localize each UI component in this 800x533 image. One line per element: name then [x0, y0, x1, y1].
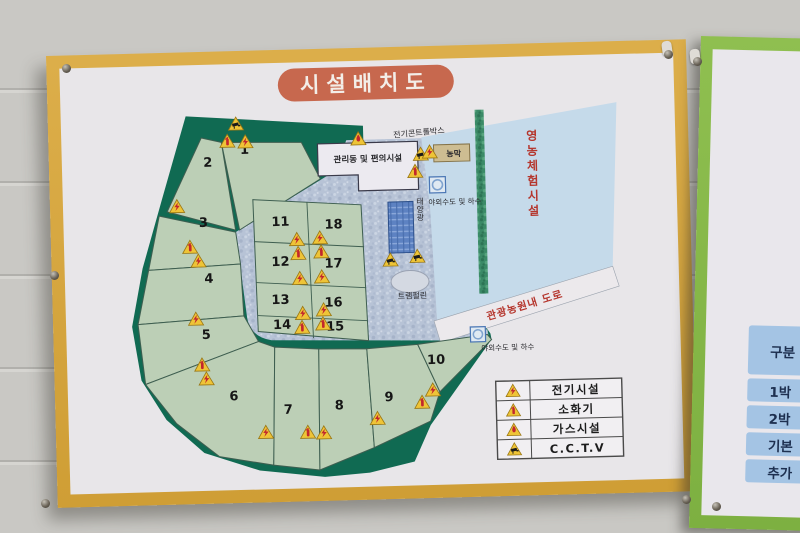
price-table-row: 구분 — [748, 325, 800, 377]
price-table: 구분1박2박기본추가 — [745, 325, 800, 489]
legend-label: 가스시설 — [553, 421, 602, 436]
legend-label: 소화기 — [558, 402, 595, 417]
plot-number: 6 — [229, 389, 238, 404]
plot-4 — [137, 264, 244, 325]
plot-number: 5 — [202, 328, 211, 343]
map-legend: 전기시설소화기가스시설C.C.T.V — [496, 378, 624, 459]
plot-number: 4 — [204, 272, 213, 287]
outdoor-water-top-icon — [429, 177, 445, 193]
outdoor-water-bottom-icon — [470, 327, 485, 342]
plot-number: 14 — [273, 318, 291, 333]
bolt — [50, 271, 59, 280]
plot-number: 3 — [199, 216, 208, 231]
plot-number: 2 — [203, 156, 212, 171]
trampoline-label: 트램펄린 — [398, 290, 428, 301]
price-table-row: 1박 — [747, 378, 800, 404]
photo-of-signboards: 시설배치도 — [0, 0, 800, 533]
outdoor-water-top-label: 야외수도 및 하수 — [428, 196, 481, 207]
price-table-row: 추가 — [745, 459, 800, 485]
side-signboard-face: 1)2)3)4) 구분1박2박기본추가 — [701, 49, 800, 518]
bolt — [41, 499, 50, 508]
plot-number: 11 — [271, 215, 289, 230]
bolt — [693, 57, 702, 66]
bolt — [682, 495, 691, 504]
price-table-row: 2박 — [746, 405, 800, 431]
signboard-face: 시설배치도 — [59, 53, 684, 495]
farm-hut-label: 농막 — [446, 148, 462, 158]
plot-number: 7 — [284, 403, 293, 418]
legend-label: 전기시설 — [552, 382, 601, 397]
sign-title: 시설배치도 — [277, 64, 454, 102]
facility-layout-signboard: 시설배치도 — [46, 39, 698, 508]
side-sign-list: 1)2)3)4) — [713, 49, 800, 52]
facility-map: 시설배치도 — [59, 53, 684, 495]
legend-label: C.C.T.V — [550, 440, 606, 455]
plot-number: 12 — [271, 255, 289, 270]
side-signboard: 1)2)3)4) 구분1박2박기본추가 — [689, 36, 800, 531]
bolt — [62, 64, 71, 73]
plot-number: 8 — [335, 398, 344, 413]
solar-panel-label: 태양광 — [415, 197, 425, 221]
plot-number: 18 — [324, 217, 342, 232]
plot-number: 17 — [324, 256, 342, 271]
outdoor-water-bottom-label: 야외수도 및 하수 — [481, 341, 534, 352]
plot-number: 9 — [384, 390, 393, 405]
bolt — [712, 502, 721, 511]
plot-number: 13 — [271, 293, 289, 308]
management-building-label: 관리동 및 편의시설 — [333, 153, 402, 166]
bolt — [664, 50, 673, 59]
plot-7 — [271, 346, 322, 471]
trampoline-shape — [391, 270, 430, 293]
page-title: 시설배치도 — [300, 70, 432, 97]
price-table-row: 기본 — [746, 432, 800, 458]
plot-number: 10 — [427, 353, 445, 368]
solar-panel-shape — [388, 201, 414, 253]
farming-experience-label: 영농체험시설 — [524, 128, 540, 220]
center-plot-block — [253, 197, 369, 344]
